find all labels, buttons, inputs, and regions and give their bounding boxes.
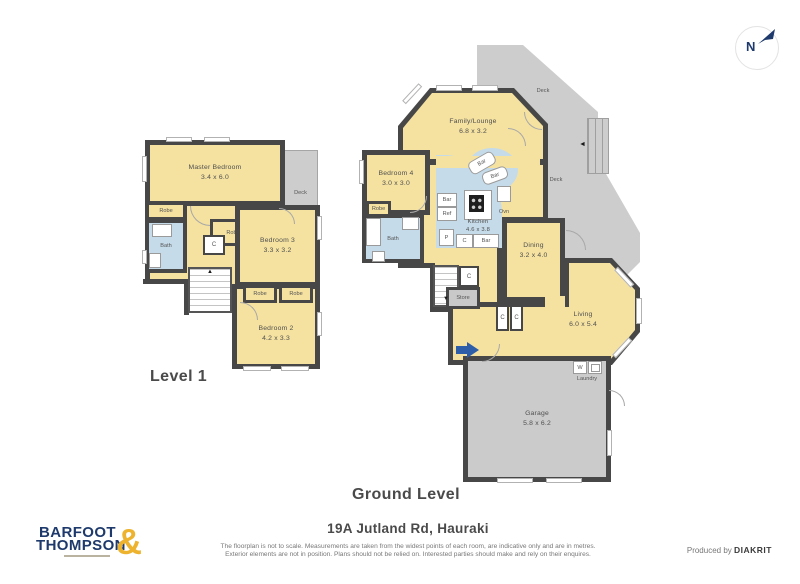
window [497, 478, 533, 483]
door-arc [609, 390, 625, 406]
level1-robe-small-1: Robe [243, 285, 277, 303]
kitchen-bar-bottom: Bar [473, 234, 499, 248]
ground-bath-sink [402, 217, 419, 230]
laundry-washer: W [573, 361, 587, 374]
floorplan-canvas: Deck Master Bedroom 3.4 x 6.0 Robe Bath … [0, 0, 800, 584]
level1-stairs-up-arrow: ▲ [207, 269, 213, 275]
kitchen-oven-box [497, 186, 511, 202]
kitchen-cupboard: C [456, 234, 473, 248]
ground-deck-steps [587, 118, 609, 174]
window [166, 137, 192, 142]
logo-word-thompson: THOMPSON [36, 539, 116, 552]
kitchen-oven-label: Ovn [495, 209, 513, 215]
laundry-tub [588, 361, 602, 374]
window [472, 85, 498, 91]
level1-exterior-notch [143, 279, 189, 315]
ground-level-title: Ground Level [306, 486, 506, 504]
laundry-tub-icon [591, 364, 600, 372]
level1-bedroom3-label: Bedroom 3 3.3 x 3.2 [260, 236, 295, 256]
window [243, 366, 271, 371]
dining-living-opening [545, 296, 565, 308]
ground-store: Store [446, 287, 480, 309]
bedroom4-label: Bedroom 4 3.0 x 3.0 [378, 169, 413, 189]
ground-cupboard-hall-1: C [496, 305, 509, 331]
level1-title: Level 1 [150, 368, 207, 386]
ground-deck-right-label: Deck [540, 177, 572, 183]
living-label: Living 6.0 x 5.4 [533, 310, 633, 330]
produced-by-prefix: Produced by [687, 546, 732, 555]
produced-by: Produced by DIAKRIT [640, 545, 772, 555]
level1-bath-sink [152, 224, 172, 237]
level1-bath-toilet [149, 253, 161, 268]
ground-garage: Garage 5.8 x 6.2 [463, 356, 611, 482]
window [636, 298, 642, 324]
ground-cupboard-hall-2: C [510, 305, 523, 331]
level1-cupboard: C [203, 235, 225, 255]
ground-robe: Robe [366, 201, 391, 217]
disclaimer-line-2: Exterior elements are not in position. P… [142, 551, 674, 559]
deck-steps-arrow: ◄ [579, 141, 586, 148]
disclaimer-line-1: The floorplan is not to scale. Measureme… [142, 543, 674, 551]
logo-tagline [64, 555, 110, 557]
window [317, 216, 322, 240]
ground-dining: Dining 3.2 x 4.0 [502, 218, 565, 302]
window [142, 250, 147, 264]
kitchen-cooktop [469, 195, 484, 212]
disclaimer: The floorplan is not to scale. Measureme… [142, 543, 674, 558]
compass-north-label: N [746, 39, 755, 54]
window [281, 366, 309, 371]
window [436, 85, 462, 91]
ground-cupboard-stairs: C [459, 266, 479, 287]
ground-bath-toilet [372, 251, 385, 262]
barfoot-thompson-logo: BARFOOT THOMPSON & [36, 526, 116, 552]
window [607, 430, 612, 456]
ground-stairs-down-arrow: ▼ [443, 296, 449, 302]
level1-robe-left: Robe [145, 201, 187, 221]
dining-label: Dining 3.2 x 4.0 [520, 241, 548, 261]
compass-arrow-icon [757, 28, 777, 48]
window [142, 156, 147, 182]
window [546, 478, 582, 483]
level1-deck-label: Deck [294, 190, 307, 196]
level1-bedroom2-label: Bedroom 2 4.2 x 3.3 [258, 324, 293, 344]
window [204, 137, 230, 142]
address-title: 19A Jutland Rd, Hauraki [258, 521, 558, 536]
window [359, 160, 364, 184]
compass: N [735, 26, 779, 70]
produced-by-brand: DIAKRIT [734, 545, 772, 555]
ground-deck-top-label: Deck [528, 88, 558, 94]
level1-master-label: Master Bedroom 3.4 x 6.0 [188, 163, 241, 183]
laundry-label: Laundry [566, 376, 608, 382]
level1-master-bedroom: Master Bedroom 3.4 x 6.0 [145, 140, 285, 206]
level1-bedroom3: Bedroom 3 3.3 x 3.2 [235, 205, 320, 287]
entry-arrow-stem [456, 346, 467, 354]
kitchen-bar-left: Bar [437, 193, 457, 207]
family-lounge-label: Family/Lounge 6.8 x 3.2 [423, 117, 523, 137]
kitchen-label: Kitchen 4.6 x 3.8 [450, 218, 506, 235]
ground-shower [366, 218, 381, 246]
entry-arrow-head [467, 342, 479, 358]
level1-robe-small-2: Robe [279, 285, 313, 303]
window [317, 312, 322, 336]
logo-ampersand: & [116, 521, 142, 563]
garage-label: Garage 5.8 x 6.2 [523, 409, 551, 429]
